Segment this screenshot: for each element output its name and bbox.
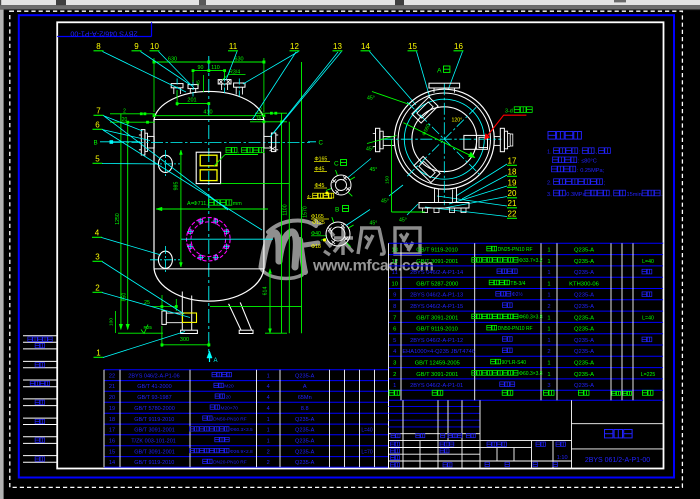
svg-text:12: 12 — [290, 42, 299, 51]
svg-text:2BYS 046/2-A-P1-12: 2BYS 046/2-A-P1-12 — [410, 338, 463, 344]
svg-text:850: 850 — [122, 293, 128, 302]
svg-text:14: 14 — [109, 460, 115, 466]
svg-text:2.: 2. — [547, 180, 552, 186]
svg-text:4: 4 — [267, 384, 270, 390]
svg-text:120°: 120° — [452, 117, 463, 123]
svg-text:15: 15 — [109, 449, 115, 455]
svg-text:2: 2 — [267, 449, 270, 455]
svg-text:17: 17 — [508, 157, 517, 166]
svg-text:2: 2 — [547, 349, 550, 355]
svg-text:15: 15 — [408, 42, 417, 51]
svg-text:11: 11 — [392, 270, 398, 276]
svg-text:1: 1 — [547, 293, 550, 299]
svg-text:5: 5 — [393, 338, 396, 344]
svg-text:2BYS 046/2-A-P1-00: 2BYS 046/2-A-P1-00 — [70, 29, 137, 38]
svg-text:A: A — [214, 358, 218, 364]
svg-text:3-d: 3-d — [505, 108, 513, 114]
svg-text:45°: 45° — [367, 96, 375, 102]
svg-text:300: 300 — [180, 337, 189, 343]
svg-text:1: 1 — [547, 361, 550, 367]
svg-text:22: 22 — [508, 210, 517, 219]
svg-text:45°: 45° — [370, 221, 378, 227]
svg-text:3: 3 — [547, 383, 550, 389]
svg-text:1: 1 — [267, 373, 270, 379]
svg-text:16: 16 — [454, 42, 463, 51]
svg-text:2BYS 046/2-A-P1-14: 2BYS 046/2-A-P1-14 — [410, 270, 463, 276]
svg-text:2: 2 — [547, 304, 550, 310]
svg-text:Q235-A: Q235-A — [574, 248, 594, 254]
svg-text:C: C — [319, 140, 324, 147]
svg-text:2BYS 061/2-A-P1-00: 2BYS 061/2-A-P1-00 — [585, 457, 650, 464]
svg-text:GB/T 41-2000: GB/T 41-2000 — [137, 384, 171, 390]
svg-text:18: 18 — [109, 417, 115, 423]
svg-text:1: 1 — [547, 372, 550, 378]
svg-text:12: 12 — [391, 259, 397, 265]
svg-text:GB/T 12459-2005: GB/T 12459-2005 — [415, 361, 460, 367]
svg-text:9: 9 — [134, 42, 139, 51]
svg-text:1250: 1250 — [115, 213, 121, 225]
svg-text:10: 10 — [150, 42, 159, 51]
svg-text:1: 1 — [267, 428, 270, 434]
svg-text:A: A — [303, 384, 307, 390]
svg-text:4-: 4- — [307, 194, 312, 200]
svg-text:GB/T 9119-2010: GB/T 9119-2010 — [416, 248, 458, 254]
svg-text:GB/T 3091-2001: GB/T 3091-2001 — [416, 315, 458, 321]
svg-text:90: 90 — [198, 65, 204, 71]
svg-text:Q235-A: Q235-A — [574, 259, 594, 265]
svg-text:GB/T 3091-2001: GB/T 3091-2001 — [134, 428, 175, 434]
svg-text:1: 1 — [267, 417, 270, 423]
svg-text:614: 614 — [263, 287, 269, 296]
svg-text:21: 21 — [109, 384, 115, 390]
svg-text:7: 7 — [96, 107, 101, 116]
svg-text:L=40: L=40 — [361, 428, 372, 434]
svg-text:Q235-A: Q235-A — [574, 327, 594, 333]
svg-text:1: 1 — [267, 438, 270, 444]
svg-text:GB/T 9119-2010: GB/T 9119-2010 — [134, 460, 174, 466]
svg-text:Φ711,: Φ711, — [193, 201, 208, 207]
svg-text:M20: M20 — [224, 384, 234, 390]
svg-text:Q235-A: Q235-A — [295, 417, 315, 423]
svg-text:3.: 3. — [547, 192, 552, 198]
svg-text:19: 19 — [508, 179, 517, 188]
svg-text:GB/T 5780-2000: GB/T 5780-2000 — [134, 406, 175, 412]
svg-text:2: 2 — [393, 372, 396, 378]
svg-text:4: 4 — [267, 395, 270, 401]
svg-text:13: 13 — [333, 42, 342, 51]
svg-text:2: 2 — [95, 284, 100, 293]
svg-text:Φ2½: Φ2½ — [512, 291, 524, 298]
svg-text:45°: 45° — [381, 199, 389, 205]
svg-text:1: 1 — [547, 338, 550, 344]
svg-text:3: 3 — [393, 361, 396, 367]
svg-text:45: 45 — [196, 80, 202, 86]
svg-text:M20×70: M20×70 — [221, 405, 239, 411]
svg-text:4: 4 — [95, 229, 100, 238]
svg-text:410: 410 — [203, 110, 212, 116]
svg-text:C: C — [334, 161, 339, 168]
svg-text:DN50-PN10 RF: DN50-PN10 RF — [213, 416, 247, 422]
svg-text:Φ60.3×3.8: Φ60.3×3.8 — [519, 315, 543, 321]
svg-text:18: 18 — [508, 168, 517, 177]
svg-text:1: 1 — [547, 327, 550, 333]
svg-text:Q235-A: Q235-A — [574, 372, 594, 378]
svg-text:2BYS 046/2-A-P1-01: 2BYS 046/2-A-P1-01 — [410, 383, 463, 389]
svg-text:15min: 15min — [627, 192, 642, 198]
svg-text:Q235-A: Q235-A — [574, 361, 594, 367]
svg-text:TB-3/4: TB-3/4 — [510, 281, 525, 287]
svg-text:17: 17 — [109, 428, 115, 434]
svg-text:mm: mm — [233, 201, 242, 207]
svg-text:1100: 1100 — [283, 204, 289, 215]
svg-text:Q235-A: Q235-A — [574, 349, 594, 355]
svg-text:2BYS 046/2-A-P1-06: 2BYS 046/2-A-P1-06 — [128, 373, 179, 379]
svg-text:Q235-A: Q235-A — [295, 428, 315, 434]
svg-text:1: 1 — [547, 248, 550, 254]
svg-text:45°: 45° — [399, 218, 407, 224]
svg-text:0.3MPa: 0.3MPa — [566, 192, 586, 198]
svg-text:Φ60.3×3.8: Φ60.3×3.8 — [519, 371, 543, 377]
svg-text:45°: 45° — [370, 167, 378, 173]
svg-text:≤80°C: ≤80°C — [581, 159, 597, 165]
svg-text:L=40: L=40 — [642, 259, 654, 265]
svg-text:B: B — [94, 140, 98, 147]
svg-text:1.: 1. — [547, 149, 552, 155]
svg-text:Φ60.3×3.5: Φ60.3×3.5 — [230, 427, 253, 433]
svg-text:2: 2 — [267, 460, 270, 466]
svg-text:A: A — [437, 68, 442, 75]
svg-text:Q235-A: Q235-A — [574, 270, 594, 276]
svg-text:14: 14 — [361, 42, 370, 51]
svg-text:GB/T 3091-2001: GB/T 3091-2001 — [416, 372, 458, 378]
svg-text:Q235-A: Q235-A — [295, 460, 315, 466]
svg-text:GB/T 5287-2000: GB/T 5287-2000 — [416, 281, 458, 287]
svg-text:9: 9 — [393, 293, 396, 299]
svg-text:Φ125: Φ125 — [312, 220, 325, 226]
svg-text:DN50-PN10 RF: DN50-PN10 RF — [498, 326, 533, 332]
svg-text:0.25MPa;: 0.25MPa; — [580, 168, 604, 174]
svg-text:L=225: L=225 — [641, 372, 656, 378]
svg-text:GB/T 3091-2001: GB/T 3091-2001 — [416, 259, 458, 265]
svg-text:Q235-A: Q235-A — [574, 315, 594, 321]
svg-text:985: 985 — [174, 182, 180, 191]
svg-text:R25: R25 — [144, 325, 153, 330]
svg-text:B: B — [335, 207, 339, 214]
svg-text:1: 1 — [96, 349, 101, 358]
svg-text:10: 10 — [391, 281, 397, 287]
svg-text:90°LR-S40: 90°LR-S40 — [502, 360, 527, 366]
svg-text:13: 13 — [391, 248, 397, 254]
svg-text:20: 20 — [226, 394, 232, 400]
svg-text:1: 1 — [547, 281, 550, 287]
svg-text:Φ18: Φ18 — [311, 244, 321, 250]
svg-text:20: 20 — [508, 189, 517, 198]
svg-text:6: 6 — [393, 327, 396, 333]
svg-text:Q235-A: Q235-A — [574, 304, 594, 310]
svg-text:630: 630 — [168, 57, 177, 63]
svg-text:630: 630 — [234, 57, 243, 63]
svg-text:5: 5 — [95, 155, 100, 164]
svg-text:20: 20 — [109, 395, 115, 401]
svg-text:EHA1000×4-Q235 JB/T4746: EHA1000×4-Q235 JB/T4746 — [402, 349, 475, 355]
svg-text:L=40: L=40 — [642, 315, 654, 321]
svg-text:11: 11 — [229, 42, 238, 51]
svg-text:Q235-A: Q235-A — [295, 373, 315, 379]
svg-text:3: 3 — [95, 253, 100, 262]
svg-text:8: 8 — [96, 42, 101, 51]
svg-text:65Mn: 65Mn — [298, 395, 312, 401]
svg-text:1: 1 — [547, 270, 550, 276]
svg-text:GB/T 93-1987: GB/T 93-1987 — [137, 395, 171, 401]
svg-text:8.8: 8.8 — [301, 406, 309, 412]
svg-text:150: 150 — [385, 176, 391, 184]
svg-text:Q235-A: Q235-A — [574, 338, 594, 344]
svg-text:1: 1 — [547, 259, 550, 265]
svg-text:DN25-PN10 RF: DN25-PN10 RF — [498, 247, 533, 253]
svg-text:L=70: L=70 — [361, 449, 372, 455]
svg-text:GB/T 3091-2001: GB/T 3091-2001 — [134, 449, 175, 455]
svg-text:8: 8 — [393, 304, 396, 310]
svg-text:GB/T 9119-2010: GB/T 9119-2010 — [134, 417, 174, 423]
svg-text:21: 21 — [508, 199, 517, 208]
svg-text:45°: 45° — [366, 147, 374, 153]
svg-text:2BYS 046/2-A-P1-15: 2BYS 046/2-A-P1-15 — [410, 304, 463, 310]
svg-text:Q235-A: Q235-A — [295, 449, 315, 455]
svg-text:Q235-A: Q235-A — [295, 438, 315, 444]
svg-text:1:10: 1:10 — [557, 455, 568, 461]
svg-text:201: 201 — [187, 98, 196, 104]
svg-text:19: 19 — [109, 406, 115, 412]
svg-text:GB/T 9119-2010: GB/T 9119-2010 — [416, 327, 458, 333]
svg-text:22: 22 — [109, 373, 115, 379]
svg-text:16: 16 — [109, 438, 115, 444]
svg-text:1570: 1570 — [303, 206, 309, 218]
svg-text:16: 16 — [256, 116, 262, 122]
svg-text:1: 1 — [547, 315, 550, 321]
svg-text:T/ZK 003-101-201: T/ZK 003-101-201 — [131, 438, 176, 444]
svg-text:Φ26.9×2.8: Φ26.9×2.8 — [230, 449, 253, 455]
svg-text:Q235-A: Q235-A — [574, 383, 594, 389]
svg-text:110: 110 — [211, 65, 219, 71]
svg-text:DN20-PN10 RF: DN20-PN10 RF — [213, 460, 247, 466]
svg-text:KTH300-06: KTH300-06 — [569, 281, 599, 287]
svg-text:4: 4 — [267, 406, 270, 412]
svg-text:6: 6 — [95, 121, 100, 130]
svg-text:Φ33.7×3.2: Φ33.7×3.2 — [519, 258, 543, 264]
svg-text:7: 7 — [393, 315, 396, 321]
svg-text:1: 1 — [393, 383, 396, 389]
svg-text:Q235-A: Q235-A — [574, 293, 594, 299]
svg-text:100: 100 — [109, 318, 115, 326]
svg-text:2BYS 046/2-A-P1-13: 2BYS 046/2-A-P1-13 — [410, 293, 463, 299]
